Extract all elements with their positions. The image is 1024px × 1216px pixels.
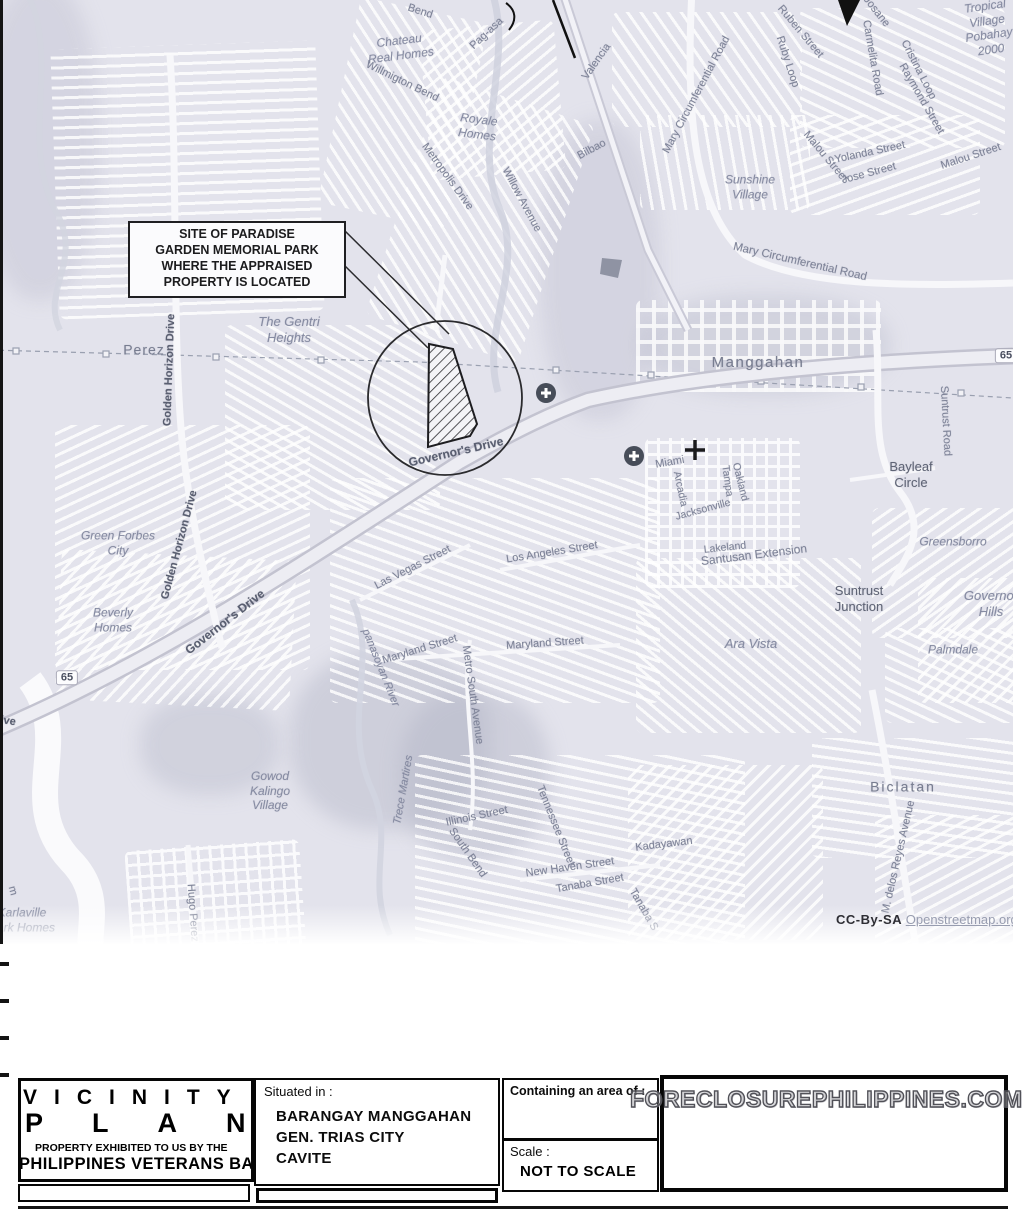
map-label: Royale Homes <box>457 110 498 144</box>
map-label: Metropolis Drive <box>418 141 476 213</box>
map-label: Metro South Avenue <box>458 645 485 745</box>
map-label: Pag-asa <box>467 15 506 53</box>
title-block-empty-strip <box>18 1184 250 1202</box>
openstreetmap-link[interactable]: Openstreetmap.org <box>906 912 1013 927</box>
bank-name-text: PHILIPPINES VETERANS BANK <box>19 1155 251 1174</box>
watermark-text: FORECLOSUREPHILIPPINES.COM <box>630 1086 1023 1113</box>
map-label: Maryland Street <box>506 635 584 654</box>
map-label: Tennessee Street <box>533 784 578 868</box>
map-label: Beverly Homes <box>93 605 133 634</box>
exhibited-by-text: PROPERTY EXHIBITED TO US BY THE <box>35 1142 251 1154</box>
map-label: Carmelita Road <box>859 19 885 97</box>
plan-title: PLAN <box>25 1108 251 1139</box>
map-label: Willmigton Bend <box>363 59 440 106</box>
scan-edge-tick <box>0 962 9 966</box>
map-label: Greensborro <box>919 535 986 550</box>
map-label: The Gentri Heights <box>258 314 319 346</box>
map-label: Bilbao <box>575 137 608 163</box>
map-label: Trece Martires <box>391 754 416 825</box>
title-block-plan-cell: VICINITY PLAN PROPERTY EXHIBITED TO US B… <box>18 1078 254 1182</box>
map-label: Mary Circumferential Road <box>660 34 733 156</box>
map-label: Biclatan <box>870 778 936 795</box>
map-labels: BendPag-asaChateau Real HomesWillmigton … <box>0 0 1013 944</box>
map-label: Los Angeles Street <box>505 539 598 567</box>
map-label: Jose Street <box>840 160 897 187</box>
title-block-scale-cell: Scale : NOT TO SCALE <box>502 1139 659 1192</box>
scan-edge-tick <box>0 1073 9 1077</box>
situated-label: Situated in : <box>264 1084 490 1099</box>
scale-label: Scale : <box>510 1144 651 1159</box>
map-label: 65 <box>56 670 78 685</box>
map-label: Governor's Drive <box>182 586 267 657</box>
site-callout-box: SITE OF PARADISE GARDEN MEMORIAL PARK WH… <box>128 221 346 298</box>
map-label: Green Forbes City <box>81 528 155 557</box>
map-label: Ruby Loop <box>772 35 801 90</box>
map-label: M. delos Reyes Avenue <box>879 799 918 914</box>
map-label: Arcadia <box>670 470 690 507</box>
map-label: Golden Horizon Drive <box>159 489 201 601</box>
map-label: Willow Avenue <box>498 165 543 234</box>
title-block-empty-strip <box>256 1188 498 1203</box>
scan-edge-tick <box>0 999 9 1003</box>
map-label: Bend <box>406 2 435 23</box>
map-label: Perez <box>123 341 165 358</box>
map-label: Governor's Drive <box>407 434 505 470</box>
map-label: Gowod Kalingo Village <box>250 769 290 813</box>
map-label: Yolanda Street <box>834 139 907 167</box>
map-label: Governor Hills <box>964 588 1013 620</box>
map-attribution: CC-By-SA Openstreetmap.org <box>836 912 1013 927</box>
map-label: Maryland Street <box>381 632 459 668</box>
map-label: Kadayawan <box>635 835 694 855</box>
situated-value: BARANGAY MANGGAHAN GEN. TRIAS CITY CAVIT… <box>276 1106 490 1169</box>
scanned-vicinity-plan-page: { "map": { "callout_text": "SITE OF PARA… <box>0 0 1024 1216</box>
map-label: Suntrust Junction <box>835 583 883 615</box>
map-label: Bayleaf Circle <box>889 459 932 491</box>
title-block-situated-cell: Situated in : BARANGAY MANGGAHAN GEN. TR… <box>254 1078 500 1186</box>
vicinity-title: VICINITY <box>23 1086 251 1110</box>
license-text: CC-By-SA <box>836 912 902 927</box>
scan-edge-line <box>0 0 3 944</box>
map-label: Las Vegas Street <box>373 543 454 593</box>
map-label: Manggahan <box>712 354 805 372</box>
map-label: 65 <box>995 348 1013 363</box>
map-label: Valencia <box>580 41 615 83</box>
scale-value: NOT TO SCALE <box>520 1163 651 1180</box>
map-label: Tropical Village Pobahay 2000 <box>960 0 1013 60</box>
map-label: Ara Vista <box>725 636 778 652</box>
vicinity-map: BendPag-asaChateau Real HomesWillmigton … <box>0 0 1013 944</box>
map-label: Malou Street <box>939 141 1002 173</box>
sheet-bottom-line <box>18 1206 1008 1209</box>
scan-edge-tick <box>0 1036 9 1040</box>
map-label: South Bend <box>445 826 489 881</box>
map-label: Golden Horizon Drive <box>161 314 178 427</box>
map-label: Suntrust Road <box>936 386 953 457</box>
map-label: Mary Circumferential Road <box>732 240 868 284</box>
map-label: panasoyan River <box>358 627 401 709</box>
map-label: Sunshine Village <box>725 172 775 201</box>
map-label: m <box>4 885 19 897</box>
map-label: Palmdale <box>928 643 978 658</box>
